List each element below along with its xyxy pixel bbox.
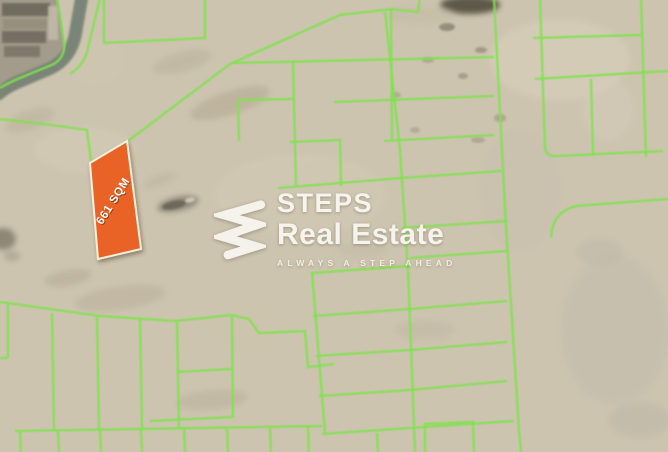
listing-map-image[interactable]: 661 SQM 661 SQM STEPS Real Estate ALWAYS… — [0, 0, 668, 452]
satellite-map: 661 SQM 661 SQM — [0, 0, 668, 452]
